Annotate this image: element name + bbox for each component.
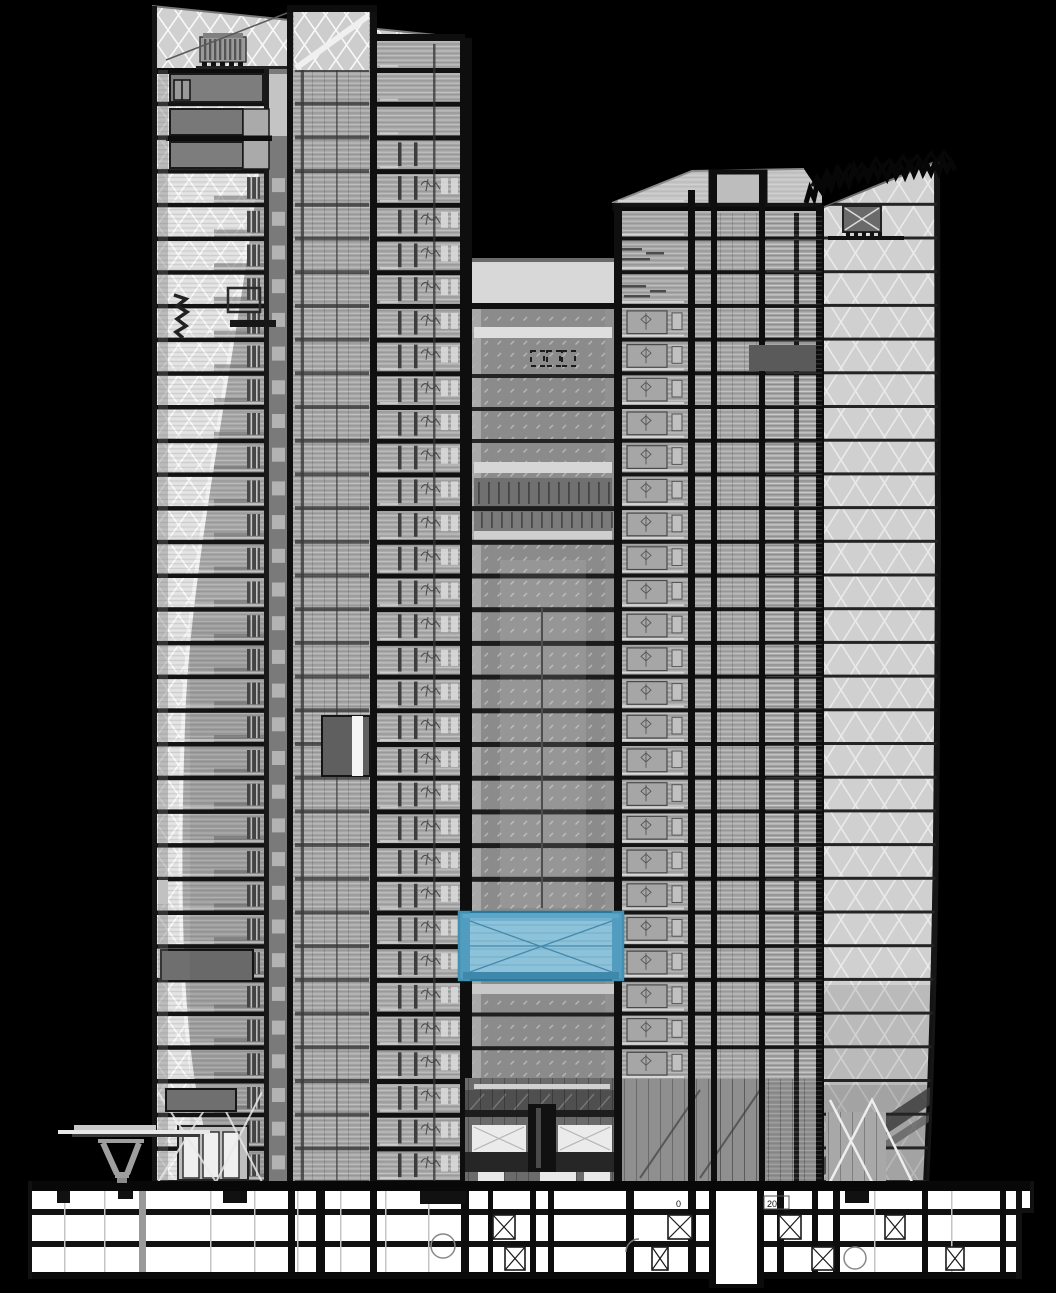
- svg-text:0: 0: [676, 1199, 681, 1209]
- svg-text:200: 200: [767, 1199, 782, 1209]
